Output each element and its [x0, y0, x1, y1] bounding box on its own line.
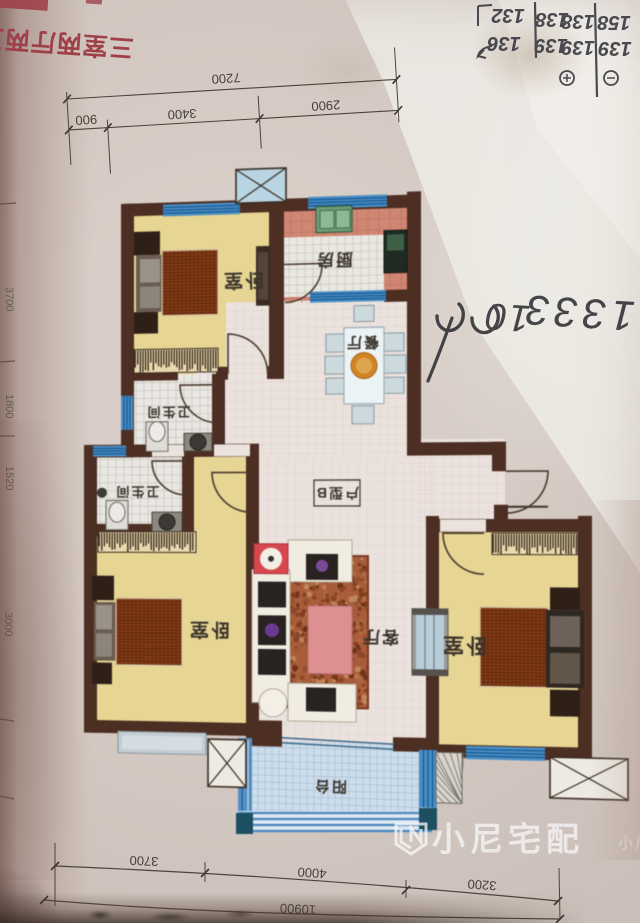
svg-text:1333: 1333 — [520, 286, 636, 340]
svg-text:1800: 1800 — [3, 394, 15, 418]
svg-text:3400: 3400 — [167, 106, 197, 123]
svg-text:小尼宅配: 小尼宅配 — [618, 834, 640, 852]
svg-text:1520: 1520 — [3, 466, 15, 490]
svg-text:2900: 2900 — [311, 97, 341, 114]
svg-text:10900: 10900 — [280, 901, 317, 918]
svg-text:三室两厅两卫: 三室两厅两卫 — [0, 23, 135, 63]
svg-text:900: 900 — [75, 112, 98, 128]
svg-text:132: 132 — [491, 4, 524, 26]
svg-text:158: 158 — [596, 11, 630, 33]
svg-text:136: 136 — [486, 32, 520, 54]
svg-text:3700: 3700 — [129, 853, 159, 869]
svg-text:4000: 4000 — [297, 865, 327, 882]
svg-text:139: 139 — [560, 36, 594, 58]
svg-text:3700: 3700 — [3, 287, 15, 311]
svg-text:小尼宅配: 小尼宅配 — [432, 821, 584, 858]
svg-text:3200: 3200 — [467, 877, 497, 894]
svg-text:139: 139 — [597, 37, 631, 59]
svg-text:138: 138 — [560, 10, 594, 32]
svg-text:3000: 3000 — [2, 612, 14, 636]
svg-text:7200: 7200 — [211, 70, 241, 87]
